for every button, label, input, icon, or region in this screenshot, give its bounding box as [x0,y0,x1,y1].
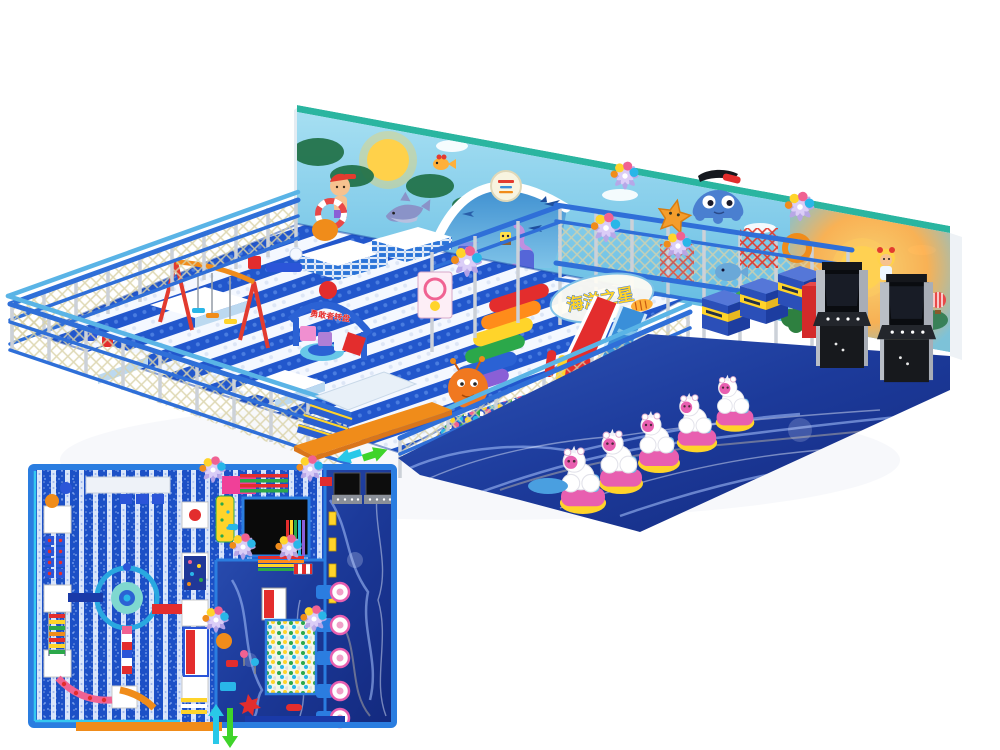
floor-plan [31,455,394,748]
plan-blue-ball [60,482,72,494]
plan-arcade-machine [364,473,394,504]
arch-red-ball [319,281,337,299]
plan-red-tab [320,477,332,486]
wave-pad [528,478,568,494]
plan-kiddie-ride [316,583,349,601]
wall-end-edge [950,233,962,360]
cartoon-panel [418,272,452,318]
plan-spiral-slide-top [216,496,234,542]
playground-render: 勇敢者转盘 [0,0,1000,750]
plan-red-bar [152,604,182,614]
plan-orange-ball [45,494,59,508]
dome-logo-badge [491,171,521,201]
plan-ball-pool [266,620,316,694]
plan-red-disc [189,509,201,521]
plan-arcade-machine [332,473,362,504]
plan-ball-washer [262,588,286,620]
plan-yellow-steps [181,698,207,714]
plan-red-white-gate [184,628,208,676]
arcade-machine [877,274,936,382]
plan-kiddie-ride [316,682,349,700]
plan-entrance-strip [76,722,222,731]
plan-kiddie-ride [316,649,349,667]
plan-awning [294,564,312,574]
plan-striped-pole [122,626,132,674]
plan-blue-bar [68,593,103,602]
arcade-machine [813,262,871,368]
